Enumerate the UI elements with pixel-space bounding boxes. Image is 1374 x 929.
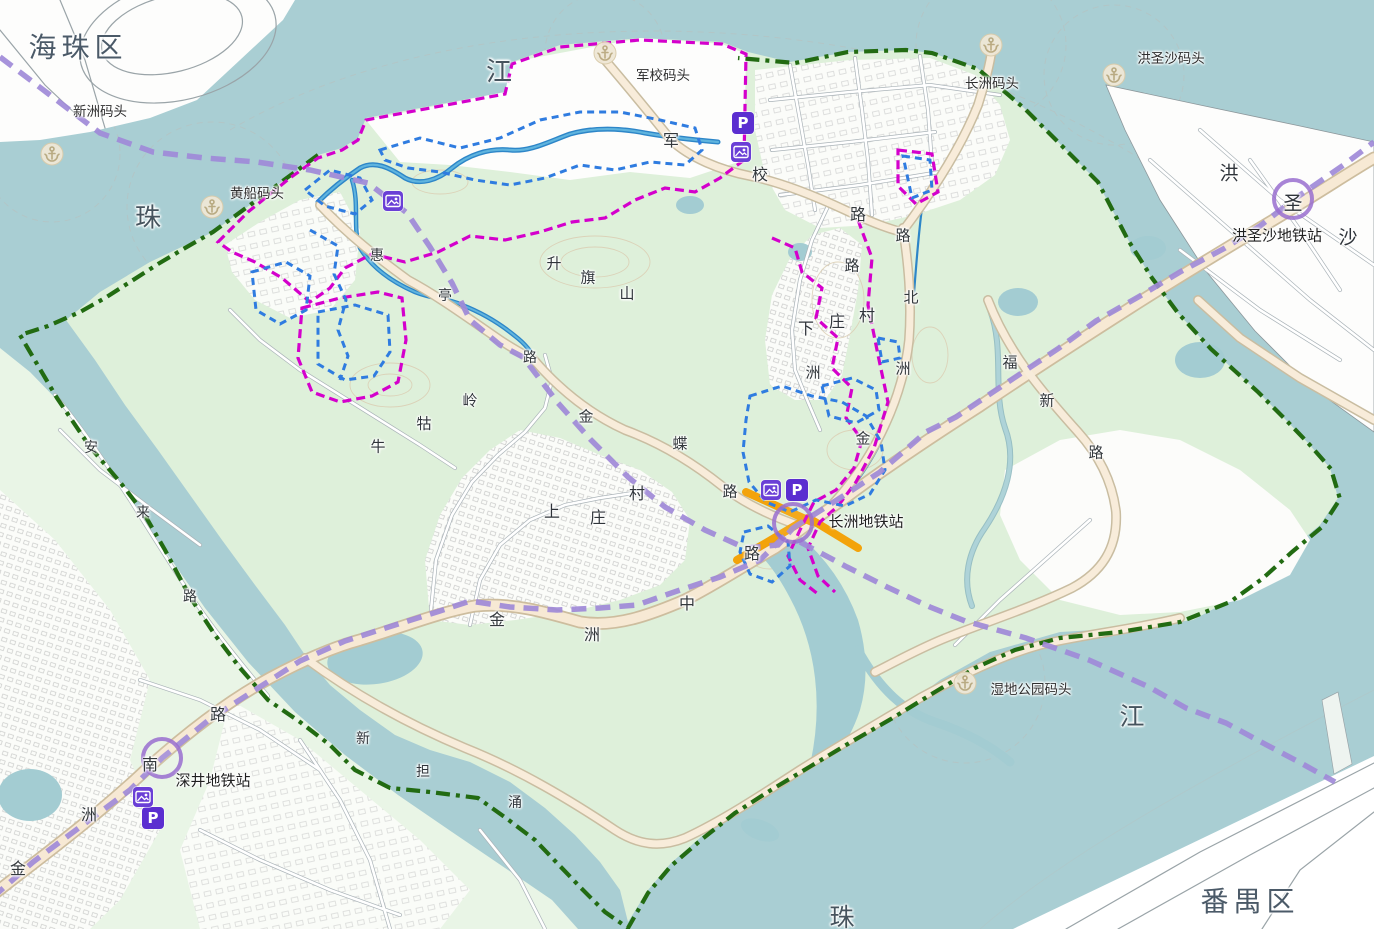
base-map: [0, 0, 1374, 929]
map-canvas: PPP 海珠区番禺区珠江江珠军校路路北洲金路洲金蝶路路中洲金路南洲金福新路惠亭路…: [0, 0, 1374, 929]
